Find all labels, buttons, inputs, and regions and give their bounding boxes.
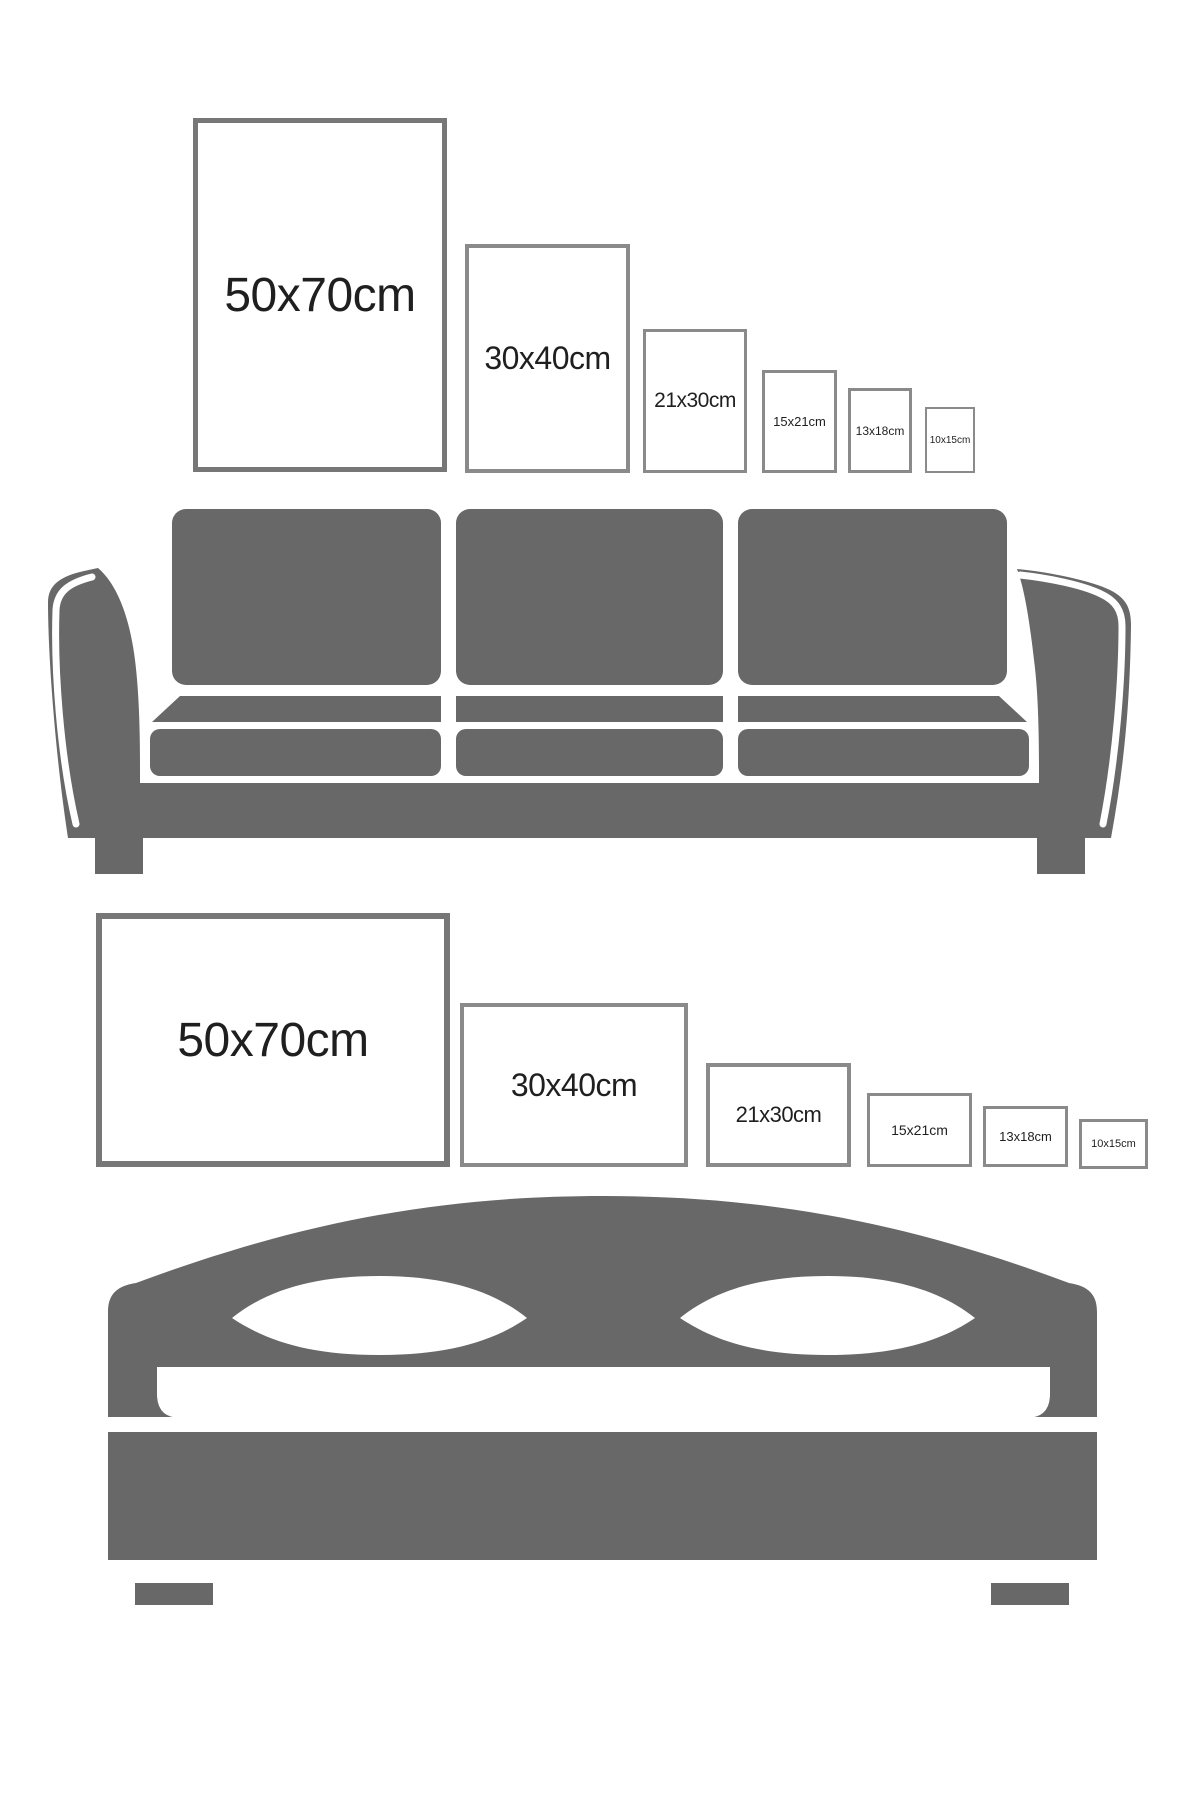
frame-landscape-30x40: 30x40cm — [460, 1003, 688, 1167]
frame-portrait-21x30: 21x30cm — [643, 329, 747, 473]
size-guide-canvas: 50x70cm 30x40cm 21x30cm 15x21cm 13x18cm … — [0, 0, 1200, 1800]
sofa-seat-cushion — [738, 729, 1029, 776]
sofa-deck — [456, 696, 723, 722]
sofa-base — [70, 783, 1110, 838]
frame-size-label: 50x70cm — [177, 1013, 368, 1068]
frame-portrait-15x21: 15x21cm — [762, 370, 837, 473]
frame-size-label: 30x40cm — [511, 1067, 637, 1104]
sofa-back-cushion — [456, 509, 723, 685]
frame-size-label: 50x70cm — [224, 268, 415, 323]
sofa-back-cushion — [172, 509, 441, 685]
sofa-deck — [738, 696, 1027, 722]
bed-foot-right — [991, 1583, 1069, 1605]
frame-landscape-21x30: 21x30cm — [706, 1063, 851, 1167]
sofa-back-cushion — [738, 509, 1007, 685]
frame-portrait-30x40: 30x40cm — [465, 244, 630, 473]
frame-size-label: 10x15cm — [1091, 1138, 1136, 1150]
frame-size-label: 13x18cm — [856, 424, 905, 438]
frame-size-label: 15x21cm — [773, 414, 826, 429]
sofa-foot-left — [95, 837, 143, 874]
sofa-seat-cushion — [150, 729, 441, 776]
sofa-foot-right — [1037, 837, 1085, 874]
frame-landscape-13x18: 13x18cm — [983, 1106, 1068, 1167]
frame-size-label: 15x21cm — [891, 1122, 948, 1138]
frame-landscape-10x15: 10x15cm — [1079, 1119, 1148, 1169]
sofa-silhouette-icon — [0, 490, 1200, 890]
bed-mattress-band — [157, 1367, 1050, 1418]
bed-foot-left — [135, 1583, 213, 1605]
frame-size-label: 21x30cm — [736, 1102, 822, 1128]
frame-portrait-10x15: 10x15cm — [925, 407, 975, 473]
frame-size-label: 13x18cm — [999, 1129, 1052, 1144]
bed-silhouette-icon — [0, 1190, 1200, 1620]
frame-portrait-13x18: 13x18cm — [848, 388, 912, 473]
frame-landscape-50x70: 50x70cm — [96, 913, 450, 1167]
frame-portrait-50x70: 50x70cm — [193, 118, 447, 472]
frame-size-label: 21x30cm — [654, 389, 736, 413]
frame-size-label: 30x40cm — [484, 340, 610, 377]
sofa-deck — [152, 696, 441, 722]
frame-size-label: 10x15cm — [930, 435, 971, 446]
frame-landscape-15x21: 15x21cm — [867, 1093, 972, 1167]
sofa-seat-cushion — [456, 729, 723, 776]
bed-base — [108, 1432, 1097, 1560]
